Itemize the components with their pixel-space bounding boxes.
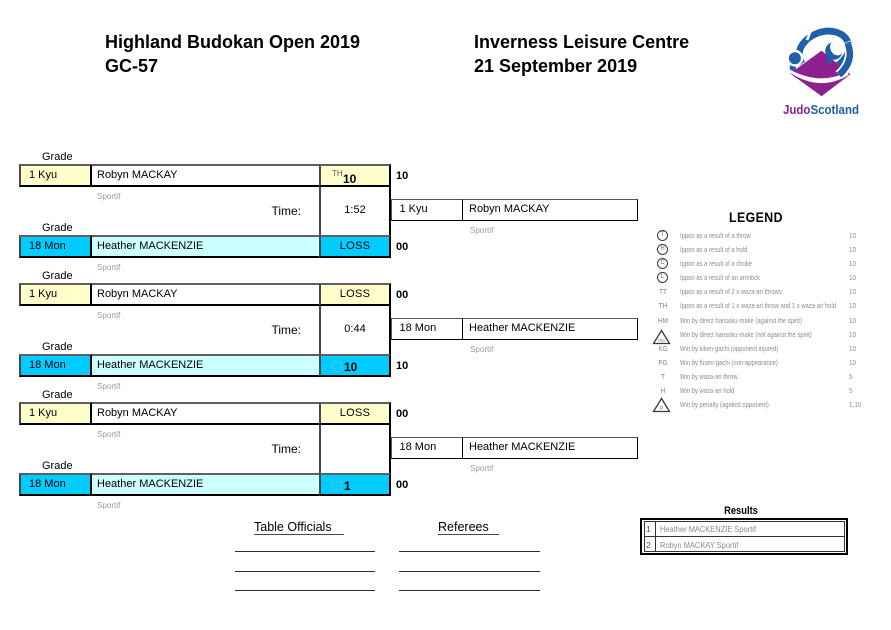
svg-text:P: P	[660, 406, 664, 412]
svg-text:JudoScotland: JudoScotland	[783, 102, 859, 117]
svg-text:HM: HM	[658, 338, 665, 343]
